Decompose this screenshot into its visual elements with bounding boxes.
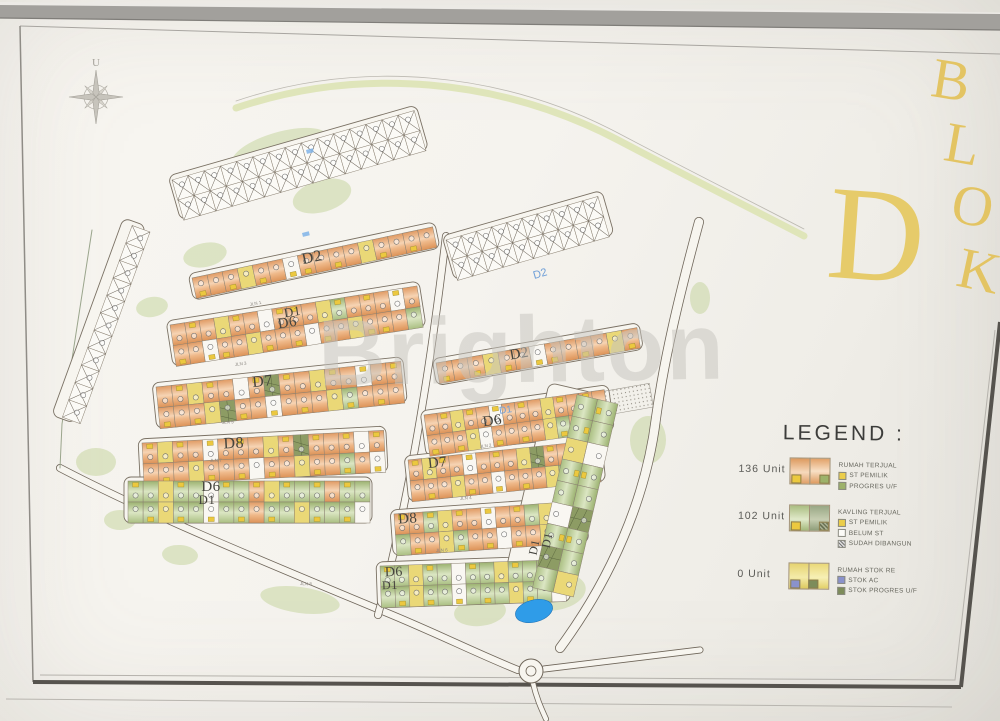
legend-line: SUDAH DIBANGUN bbox=[849, 540, 912, 548]
compass-north-label: U bbox=[92, 57, 100, 69]
block-label: D1 bbox=[199, 492, 216, 507]
legend-entry-sold-house: 136 Unit RUMAH TERJUAL ST PEMILIK PROGRE… bbox=[738, 457, 963, 491]
street-name-label: JLN 5 bbox=[222, 419, 235, 425]
dark-box-icon bbox=[837, 586, 845, 594]
legend-swatch-orange bbox=[790, 457, 830, 484]
legend-swatch-green bbox=[790, 504, 830, 531]
legend-unit-count: 102 Unit bbox=[738, 504, 786, 523]
block-label: D7 bbox=[427, 454, 448, 472]
legend-swatch-yellow bbox=[789, 562, 829, 589]
block-word-letter: L bbox=[940, 113, 984, 175]
green-area bbox=[76, 448, 116, 476]
blue-box-icon bbox=[837, 576, 845, 584]
road-label: D2 bbox=[532, 266, 549, 281]
block-label: D6 bbox=[277, 314, 299, 333]
legend-line: KAVLING TERJUAL bbox=[838, 509, 901, 517]
photo-frame-top-edge bbox=[0, 2, 1000, 30]
block-label: D8 bbox=[398, 510, 418, 527]
block-label: D8 bbox=[223, 434, 244, 452]
blue-mark-icon bbox=[790, 579, 800, 588]
legend-entry-sold-plot: 102 Unit KAVLING TERJUAL ST PEMILIK BELU… bbox=[738, 504, 963, 549]
block-label: D1 bbox=[382, 578, 398, 593]
green-mark-icon bbox=[819, 475, 829, 484]
block-word-letter: K bbox=[952, 238, 1000, 303]
green-area bbox=[135, 295, 170, 320]
lot-row bbox=[128, 502, 370, 523]
lot-row bbox=[62, 226, 150, 424]
brighton-watermark: Brighton bbox=[317, 292, 726, 407]
block-word-letter: O bbox=[947, 175, 998, 239]
legend-line: ST PEMILIK bbox=[849, 519, 888, 526]
legend-line: STOK PROGRES U/F bbox=[848, 587, 917, 595]
blue-mark bbox=[302, 231, 310, 237]
white-box-icon bbox=[838, 529, 846, 537]
street-name-label: JLN 7 bbox=[210, 458, 222, 463]
dark-mark-icon bbox=[808, 579, 818, 588]
lot-row bbox=[128, 481, 370, 502]
green-box-icon bbox=[838, 482, 846, 490]
block-label: D7 bbox=[251, 372, 273, 391]
yellow-mark-icon bbox=[791, 521, 801, 530]
street-name-label: JLN 4 bbox=[460, 495, 473, 501]
legend-line: PROGRES U/F bbox=[849, 482, 897, 490]
compass-rose: U bbox=[69, 57, 123, 124]
legend-title: LEGEND : bbox=[783, 421, 964, 447]
block-word-letter: B bbox=[928, 49, 974, 111]
legend-line: RUMAH STOK RE bbox=[837, 566, 895, 574]
legend: LEGEND : 136 Unit RUMAH TERJUAL ST PEMIL… bbox=[737, 421, 964, 611]
yellow-box-icon bbox=[838, 471, 846, 479]
legend-line: RUMAH TERJUAL bbox=[838, 462, 896, 470]
roundabout bbox=[519, 659, 543, 683]
legend-line: BELUM ST bbox=[849, 529, 884, 536]
road-label: D1 bbox=[499, 404, 514, 417]
legend-line: STOK AC bbox=[848, 576, 878, 583]
legend-unit-count: 136 Unit bbox=[738, 457, 786, 476]
hatch-mark-icon bbox=[819, 522, 829, 531]
street-name-label: JLN 8 bbox=[300, 581, 312, 586]
block-title: D B L O K bbox=[826, 40, 1000, 330]
street-name-label: JLN 3 bbox=[235, 361, 248, 367]
legend-entry-stock: 0 Unit RUMAH STOK RE STOK AC STOK PROGRE… bbox=[737, 561, 962, 595]
block-letter-d: D bbox=[823, 165, 929, 305]
legend-line: ST PEMILIK bbox=[849, 472, 888, 479]
green-area bbox=[161, 544, 198, 566]
legend-unit-count: 0 Unit bbox=[737, 561, 785, 580]
yellow-mark-icon bbox=[791, 474, 801, 483]
street-name-label: JLN 6 bbox=[436, 547, 448, 553]
site-plan-photo: U JLN 1JLN 3JLN 5JLN 7JLN 2JLN 4JLN 6JLN… bbox=[0, 0, 1000, 721]
hatch-box-icon bbox=[838, 539, 846, 547]
yellow-box-icon bbox=[838, 518, 846, 526]
